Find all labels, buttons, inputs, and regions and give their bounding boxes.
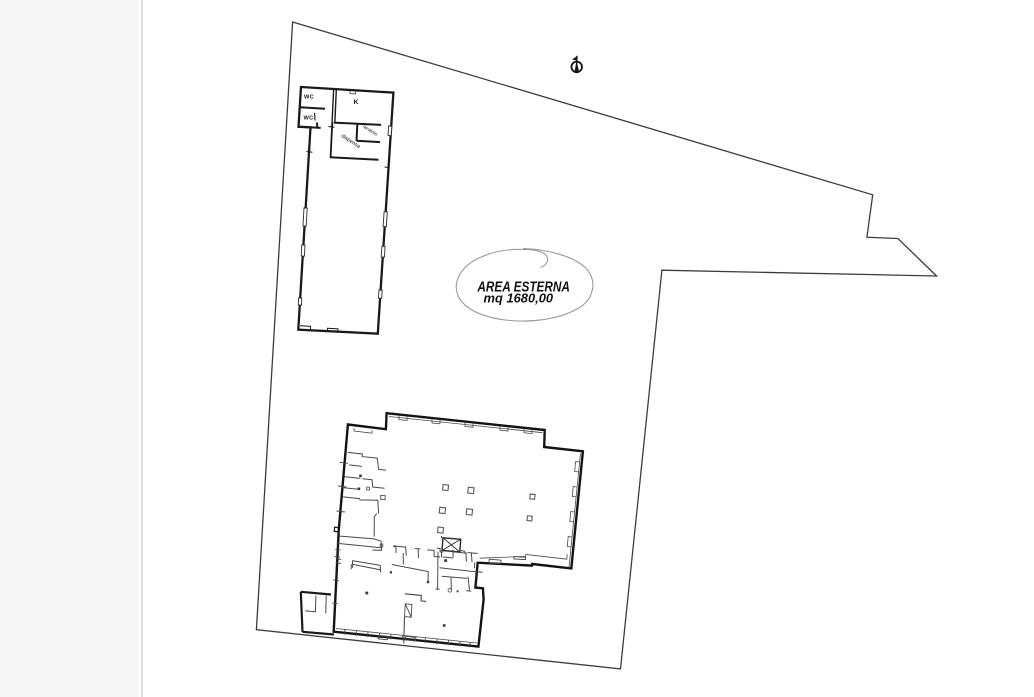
svg-text:lavatoio: lavatoio bbox=[361, 124, 378, 138]
svg-text:K: K bbox=[354, 99, 359, 106]
svg-text:WC: WC bbox=[304, 94, 314, 100]
svg-text:mq 1680,00: mq 1680,00 bbox=[484, 292, 554, 306]
svg-text:WC: WC bbox=[304, 115, 314, 121]
